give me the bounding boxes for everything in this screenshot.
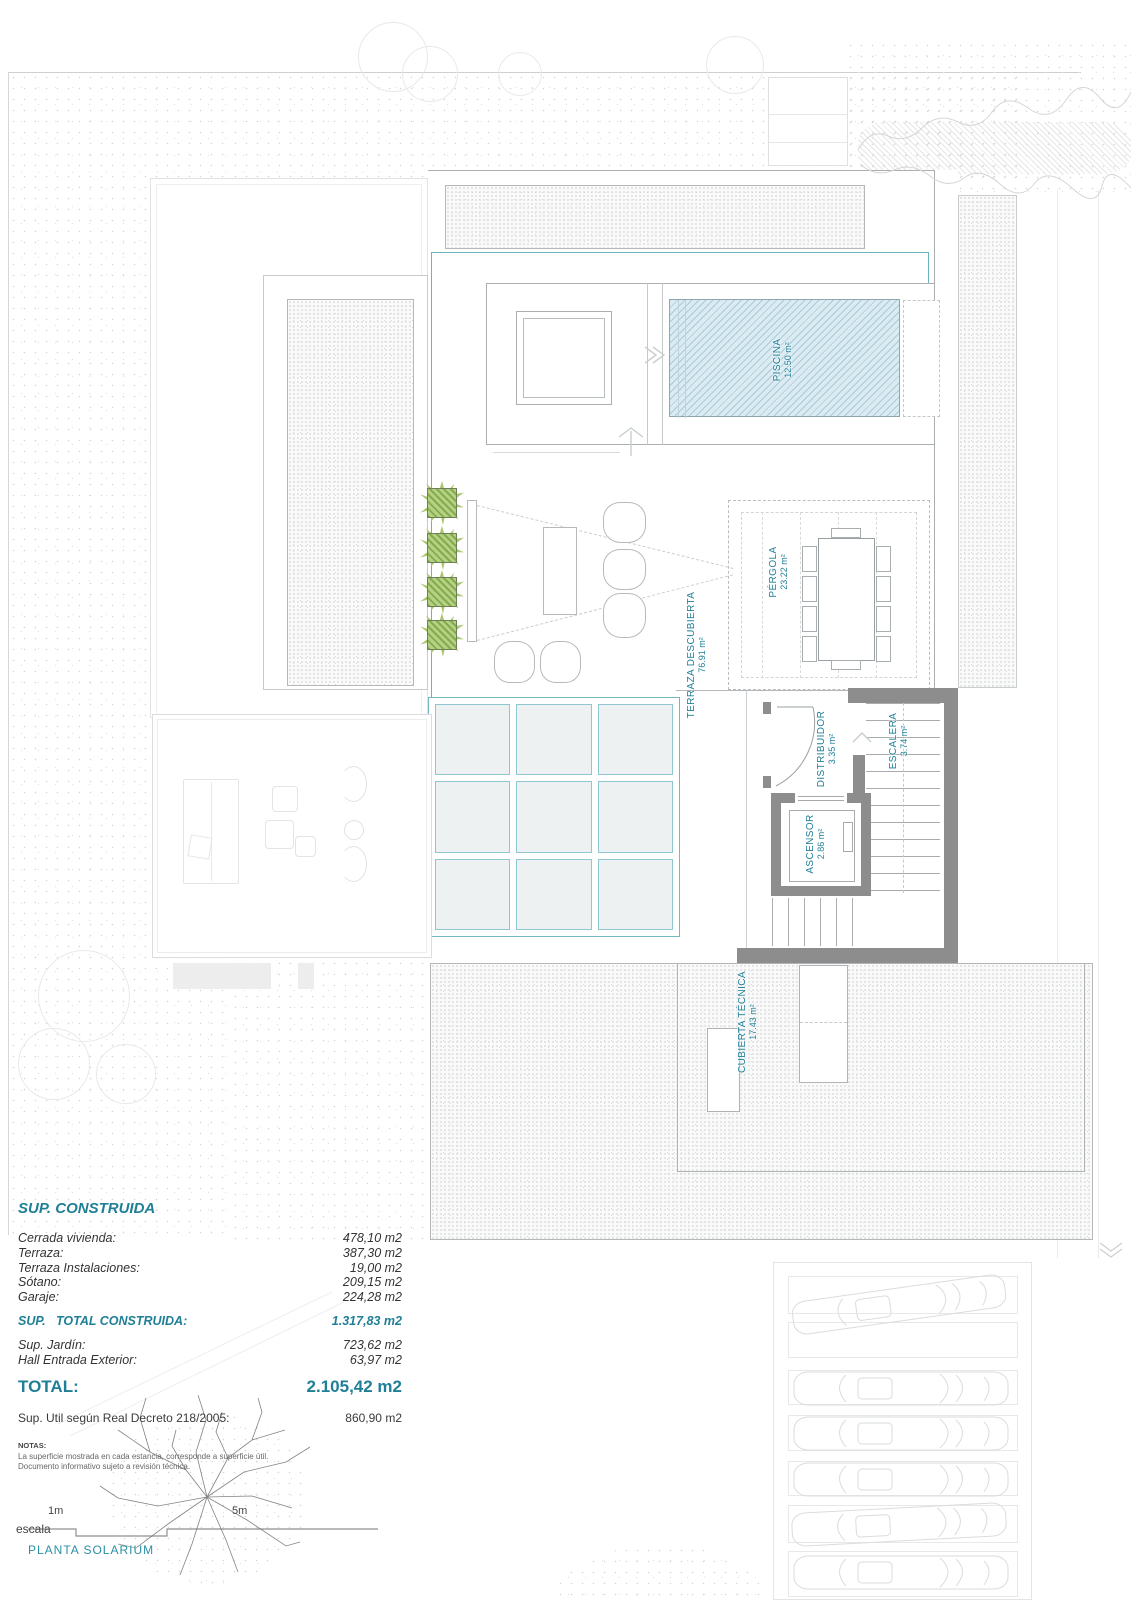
summary-row-label: Sup. Jardín:: [18, 1338, 85, 1353]
ghost-cars: [791, 1273, 1008, 1589]
summary-total-value: 2.105,42 m2: [307, 1377, 402, 1397]
notes-line: Documento informativo sujeto a revisión …: [18, 1462, 402, 1472]
summary-row: Garaje: 224,28 m2: [18, 1290, 402, 1305]
scale-label: escala: [16, 1522, 51, 1536]
floor-plan-sheet: PISCINA 12.50 m² TERRAZA DESCUBIERTA 76.…: [0, 0, 1131, 1600]
summary-row: Hall Entrada Exterior: 63,97 m2: [18, 1353, 402, 1368]
summary-row-label: Cerrada vivienda:: [18, 1231, 116, 1246]
summary-title: SUP. CONSTRUIDA: [18, 1200, 402, 1217]
summary-row-value: 63,97 m2: [350, 1353, 402, 1368]
surface-summary: SUP. CONSTRUIDA Cerrada vivienda: 478,10…: [18, 1200, 402, 1472]
summary-util-value: 860,90 m2: [345, 1411, 402, 1426]
summary-row: Terraza Instalaciones: 19,00 m2: [18, 1261, 402, 1276]
notes-line: La superficie mostrada en cada estancia,…: [18, 1452, 402, 1462]
summary-row: Sótano: 209,15 m2: [18, 1275, 402, 1290]
summary-subtotal-label: SUP. TOTAL CONSTRUIDA:: [18, 1314, 187, 1329]
summary-row-value: 19,00 m2: [350, 1261, 402, 1276]
summary-row-value: 723,62 m2: [343, 1338, 402, 1353]
summary-row-label: Sótano:: [18, 1275, 61, 1290]
summary-total: TOTAL: 2.105,42 m2: [18, 1377, 402, 1397]
summary-row: Terraza: 387,30 m2: [18, 1246, 402, 1261]
summary-util: Sup. Util según Real Decreto 218/2005: 8…: [18, 1411, 402, 1426]
summary-row-value: 224,28 m2: [343, 1290, 402, 1305]
summary-row-value: 478,10 m2: [343, 1231, 402, 1246]
summary-row-value: 209,15 m2: [343, 1275, 402, 1290]
summary-row-label: Terraza:: [18, 1246, 63, 1261]
summary-subtotal: SUP. TOTAL CONSTRUIDA: 1.317,83 m2: [18, 1314, 402, 1329]
summary-util-label: Sup. Util según Real Decreto 218/2005:: [18, 1411, 229, 1426]
summary-row-label: Garaje:: [18, 1290, 59, 1305]
scale-1m-label: 1m: [48, 1505, 63, 1517]
summary-row: Sup. Jardín: 723,62 m2: [18, 1338, 402, 1353]
summary-row-label: Terraza Instalaciones:: [18, 1261, 140, 1276]
summary-row-label: Hall Entrada Exterior:: [18, 1353, 137, 1368]
scale-5m-label: 5m: [232, 1505, 247, 1517]
plan-title: PLANTA SOLARIUM: [28, 1543, 154, 1557]
notes-heading: NOTAS:: [18, 1441, 402, 1450]
summary-row: Cerrada vivienda: 478,10 m2: [18, 1231, 402, 1246]
summary-total-label: TOTAL:: [18, 1377, 79, 1397]
summary-row-value: 387,30 m2: [343, 1246, 402, 1261]
summary-subtotal-value: 1.317,83 m2: [332, 1314, 402, 1329]
